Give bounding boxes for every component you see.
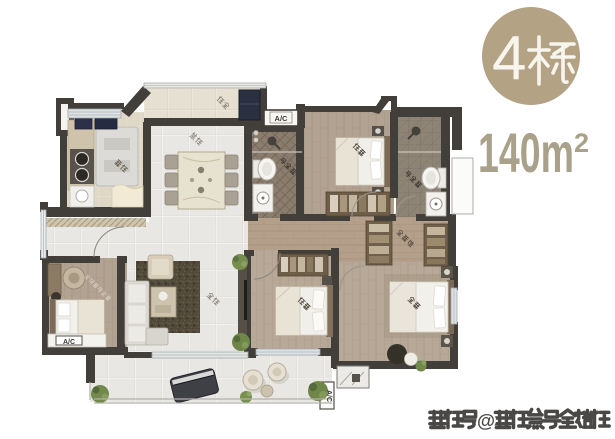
svg-text:4: 4 xyxy=(492,24,526,93)
svg-text:@: @ xyxy=(477,410,495,431)
svg-text:A/C: A/C xyxy=(325,390,332,402)
svg-text:2: 2 xyxy=(574,128,589,158)
svg-text:A/C: A/C xyxy=(275,114,289,123)
svg-text:140m: 140m xyxy=(478,123,574,185)
svg-text:A/C: A/C xyxy=(63,339,75,346)
